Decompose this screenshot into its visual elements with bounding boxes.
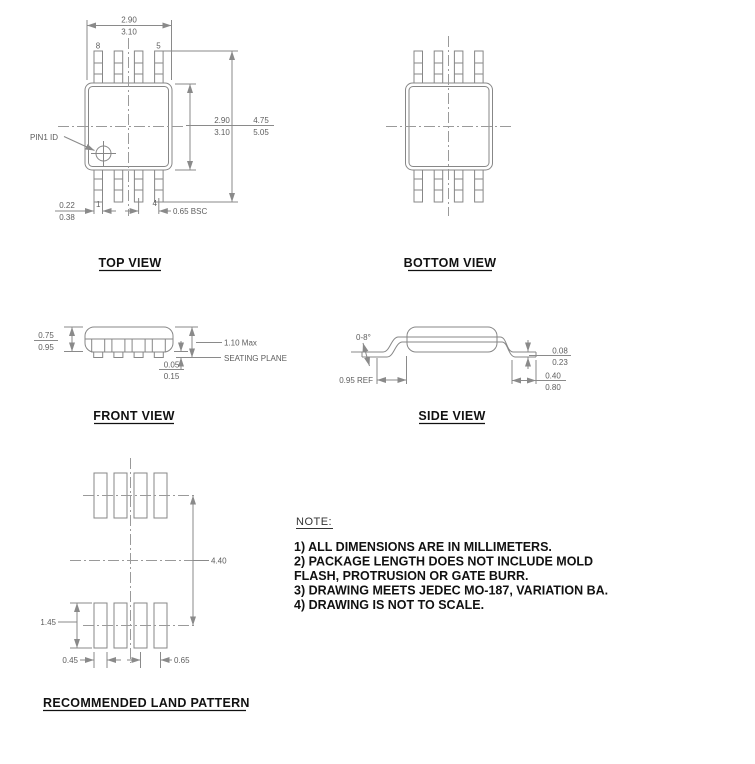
top-view-title: TOP VIEW: [98, 256, 161, 270]
note-line-2: 2) PACKAGE LENGTH DOES NOT INCLUDE MOLD: [294, 555, 593, 569]
dim-max-height: 1.10 Max SEATING PLANE: [175, 327, 287, 363]
dim-foot-length-lower: 0.80: [545, 383, 561, 392]
land-pattern: 4.40 1.45 0.45 0.65 RECOMMENDED LAND PAT…: [40, 458, 249, 711]
dim-lead-width-lower: 0.38: [59, 213, 75, 222]
dim-lead-length-ref-label: 0.95 REF: [339, 376, 373, 385]
dim-standoff-upper: 0.05: [164, 361, 180, 370]
dim-pitch-label: 0.65 BSC: [173, 207, 207, 216]
notes-block: NOTE: 1) ALL DIMENSIONS ARE IN MILLIMETE…: [294, 516, 608, 612]
front-view-body: [85, 327, 173, 352]
note-line-4: 4) DRAWING IS NOT TO SCALE.: [294, 598, 484, 612]
note-line-3: 3) DRAWING MEETS JEDEC MO-187, VARIATION…: [294, 584, 608, 598]
dim-pad-pitch: 0.65: [127, 652, 190, 668]
bottom-view-title: BOTTOM VIEW: [404, 256, 497, 270]
note-line-1: 1) ALL DIMENSIONS ARE IN MILLIMETERS.: [294, 540, 552, 554]
dim-pad-pitch-label: 0.65: [174, 656, 190, 665]
dim-row-span: 4.40: [193, 496, 227, 626]
package-outline-drawing-page: PIN1 ID 8 5 2.90 3.10 2.90 3.10 4.75 5.0…: [0, 0, 755, 764]
note-heading: NOTE:: [296, 516, 332, 528]
pin-number-8: 8: [96, 42, 101, 51]
dim-standoff: 0.05 0.15: [159, 341, 188, 381]
dim-lead-thickness-upper: 0.08: [552, 347, 568, 356]
dim-pad-width: 0.45: [62, 652, 121, 668]
dim-body-height-lower: 3.10: [214, 128, 230, 137]
land-pattern-centerlines: [70, 458, 196, 663]
side-view: 0-8° 0.95 REF 0.08 0.23 0.40 0.80 SIDE V…: [339, 327, 571, 424]
dim-thickness-upper: 0.75: [38, 331, 54, 340]
dim-width-upper: 2.90: [121, 16, 137, 25]
side-view-lead: [362, 337, 536, 357]
dim-pad-width-label: 0.45: [62, 656, 78, 665]
note-line-2-wrap: FLASH, PROTRUSION OR GATE BURR.: [294, 569, 529, 583]
front-view: 0.75 0.95 1.10 Max SEATING PLANE 0.05 0.…: [34, 327, 287, 424]
dim-thickness-lower: 0.95: [38, 343, 54, 352]
dim-max-height-label: 1.10 Max: [224, 339, 257, 348]
dim-row-span-label: 4.40: [211, 557, 227, 566]
pin-number-4: 4: [153, 199, 158, 208]
dim-pitch: 4 0.65 BSC: [125, 198, 207, 216]
dim-lead-angle-label: 0-8°: [356, 333, 371, 342]
dim-foot-length-upper: 0.40: [545, 372, 561, 381]
dim-lead-width: 0.22 0.38 1: [55, 196, 116, 222]
bottom-view-centerlines: [386, 36, 512, 216]
dim-lead-angle: 0-8°: [351, 333, 371, 366]
pin1-id-label: PIN1 ID: [30, 133, 58, 142]
top-view-centerlines: [58, 38, 184, 216]
dim-overall-upper: 4.75: [253, 116, 269, 125]
dim-lead-length-ref: 0.95 REF: [339, 356, 406, 385]
pin-number-5: 5: [156, 42, 161, 51]
top-view: PIN1 ID 8 5 2.90 3.10 2.90 3.10 4.75 5.0…: [30, 16, 274, 271]
bottom-view: BOTTOM VIEW: [386, 36, 512, 271]
dim-body-thickness: 0.75 0.95: [34, 327, 83, 352]
dim-overall-lower: 5.05: [253, 128, 269, 137]
dim-width-lower: 3.10: [121, 28, 137, 37]
seating-plane-label: SEATING PLANE: [224, 354, 287, 363]
front-view-leads: [92, 339, 166, 358]
front-view-title: FRONT VIEW: [93, 409, 174, 423]
side-view-title: SIDE VIEW: [418, 409, 485, 423]
dim-lead-width-upper: 0.22: [59, 201, 75, 210]
side-view-body: [407, 327, 497, 352]
drawing-canvas: PIN1 ID 8 5 2.90 3.10 2.90 3.10 4.75 5.0…: [0, 0, 755, 764]
dim-pad-length-label: 1.45: [40, 618, 56, 627]
dim-lead-thickness: 0.08 0.23: [528, 340, 571, 369]
dim-lead-thickness-lower: 0.23: [552, 358, 568, 367]
dim-standoff-lower: 0.15: [164, 372, 180, 381]
dim-body-height-upper: 2.90: [214, 116, 230, 125]
pin-number-1: 1: [96, 200, 101, 209]
pin1-id-marker: [64, 137, 116, 167]
land-pattern-title: RECOMMENDED LAND PATTERN: [43, 696, 250, 710]
